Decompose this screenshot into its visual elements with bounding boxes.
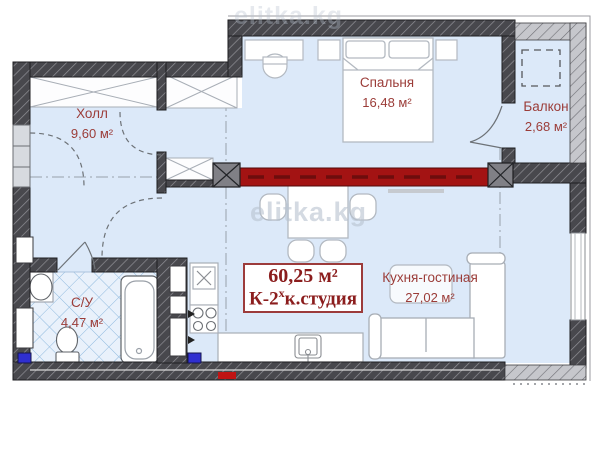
bathroom-area: 4,47 м²	[61, 313, 103, 333]
bathtub	[121, 276, 158, 363]
balcony-name: Балкон	[523, 97, 568, 117]
bedroom-name: Спальня	[360, 73, 414, 93]
hall-name: Холл	[71, 104, 113, 124]
label-bathroom: С/У 4,47 м²	[61, 293, 103, 333]
bedroom-area: 16,48 м²	[360, 93, 414, 113]
apartment-summary-box: 60,25 м² К-2хк.студия	[243, 263, 363, 313]
highlighted-red-wall	[240, 168, 488, 186]
kitchen-living-name: Кухня-гостиная	[382, 268, 478, 288]
label-kitchen-living: Кухня-гостиная 27,02 м²	[382, 268, 478, 308]
balcony-area: 2,68 м²	[523, 117, 568, 137]
floor-plan-drawing	[0, 0, 600, 450]
label-bedroom: Спальня 16,48 м²	[360, 73, 414, 113]
hall-area: 9,60 м²	[71, 124, 113, 144]
kitchen-sink	[295, 335, 321, 362]
tv-shelf	[388, 189, 444, 193]
window-right	[571, 233, 585, 320]
floor-plan: elitka.kg elitka.kg Холл 9,60 м² Спальня…	[0, 0, 600, 450]
label-balcony: Балкон 2,68 м²	[523, 97, 568, 137]
total-area: 60,25 м²	[245, 266, 361, 288]
kitchen-living-area: 27,02 м²	[382, 288, 478, 308]
entrance-door	[13, 125, 30, 187]
label-hall: Холл 9,60 м²	[71, 104, 113, 144]
apartment-type: К-2хк.студия	[245, 287, 361, 310]
bathroom-name: С/У	[61, 293, 103, 313]
